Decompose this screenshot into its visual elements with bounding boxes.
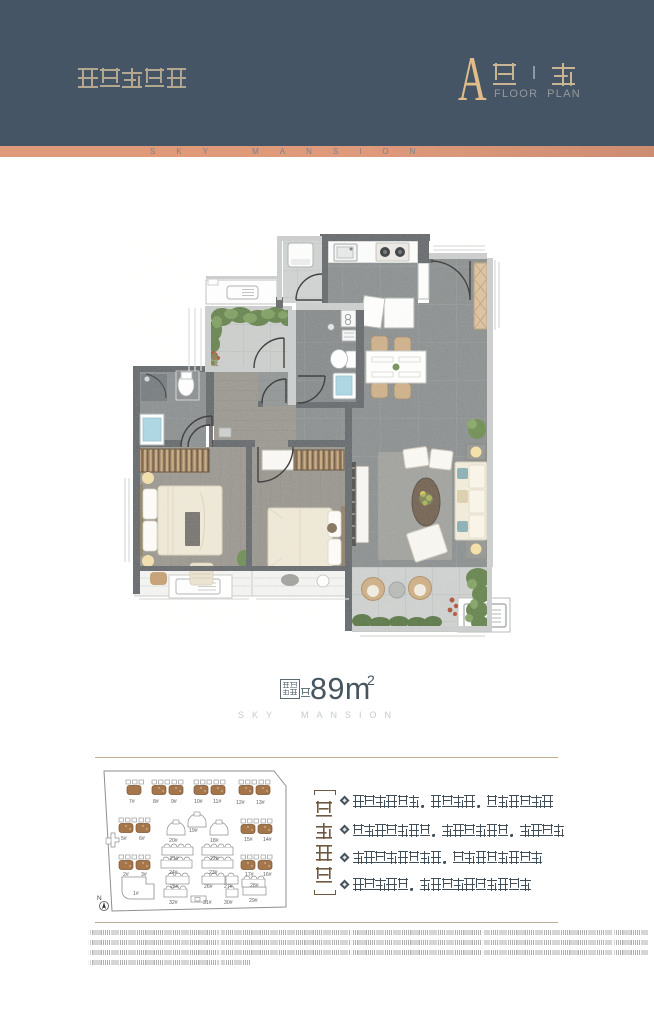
svg-text:N: N — [97, 895, 102, 902]
svg-text:6#: 6# — [139, 836, 145, 842]
svg-text:28#: 28# — [250, 883, 259, 889]
svg-text:12#: 12# — [236, 800, 245, 806]
svg-text:31#: 31# — [203, 900, 212, 906]
svg-text:21#: 21# — [170, 856, 179, 862]
svg-text:3#: 3# — [141, 872, 147, 878]
svg-text:1#: 1# — [133, 891, 139, 897]
svg-text:15#: 15# — [244, 837, 253, 843]
svg-text:29#: 29# — [249, 898, 258, 904]
svg-text:20#: 20# — [169, 838, 178, 844]
svg-text:22#: 22# — [210, 856, 219, 862]
svg-text:13#: 13# — [256, 800, 265, 806]
svg-text:27#: 27# — [224, 884, 233, 890]
svg-text:25#: 25# — [170, 884, 179, 890]
svg-text:24#: 24# — [169, 870, 178, 876]
svg-text:8#: 8# — [153, 799, 159, 805]
svg-text:17#: 17# — [245, 872, 254, 878]
svg-text:30#: 30# — [224, 900, 233, 906]
svg-text:10#: 10# — [194, 799, 203, 805]
svg-text:5#: 5# — [121, 836, 127, 842]
svg-text:23#: 23# — [209, 870, 218, 876]
svg-text:14#: 14# — [263, 837, 272, 843]
svg-text:2#: 2# — [123, 872, 129, 878]
svg-text:18#: 18# — [210, 838, 219, 844]
svg-text:26#: 26# — [204, 884, 213, 890]
svg-text:16#: 16# — [263, 872, 272, 878]
svg-text:9#: 9# — [171, 799, 177, 805]
svg-text:7#: 7# — [129, 799, 135, 805]
svg-text:32#: 32# — [169, 900, 178, 906]
svg-text:19#: 19# — [189, 828, 198, 834]
svg-text:11#: 11# — [213, 799, 221, 805]
